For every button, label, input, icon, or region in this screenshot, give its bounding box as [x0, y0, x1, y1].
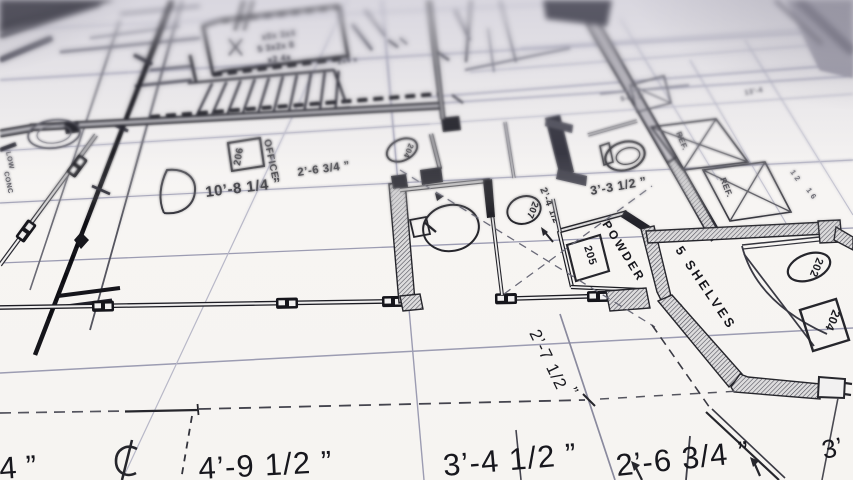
- svg-text:2’-6 3/4 ”: 2’-6 3/4 ”: [297, 160, 351, 179]
- svg-text:4’-9 1/2 ”: 4’-9 1/2 ”: [198, 444, 334, 480]
- svg-text:3’-3 1/2 ”: 3’-3 1/2 ”: [589, 174, 648, 198]
- svg-text:1 2: 1 2: [788, 168, 802, 183]
- svg-text:REF.: REF.: [674, 130, 690, 151]
- svg-text:CONC: CONC: [2, 171, 14, 195]
- svg-text:13’-4: 13’-4: [744, 87, 763, 97]
- svg-text:2’-7 1/2: 2’-7 1/2: [525, 326, 570, 392]
- svg-text:205: 205: [581, 244, 599, 267]
- svg-text:2x4 x: 2x4 x: [337, 56, 358, 66]
- svg-text:4 ”: 4 ”: [0, 448, 38, 480]
- svg-text:REF.: REF.: [718, 176, 735, 199]
- svg-text:2’-6 3/4 ”: 2’-6 3/4 ”: [614, 434, 751, 480]
- svg-text:204: 204: [402, 142, 416, 159]
- svg-text:3’: 3’: [819, 431, 846, 465]
- svg-text:206: 206: [232, 147, 246, 167]
- svg-text:1 6: 1 6: [804, 186, 818, 201]
- svg-text:10’-8 1/4 ”: 10’-8 1/4 ”: [204, 175, 282, 201]
- svg-text:3’-4 1/2 ”: 3’-4 1/2 ”: [442, 436, 579, 480]
- svg-text:LOW: LOW: [4, 151, 15, 170]
